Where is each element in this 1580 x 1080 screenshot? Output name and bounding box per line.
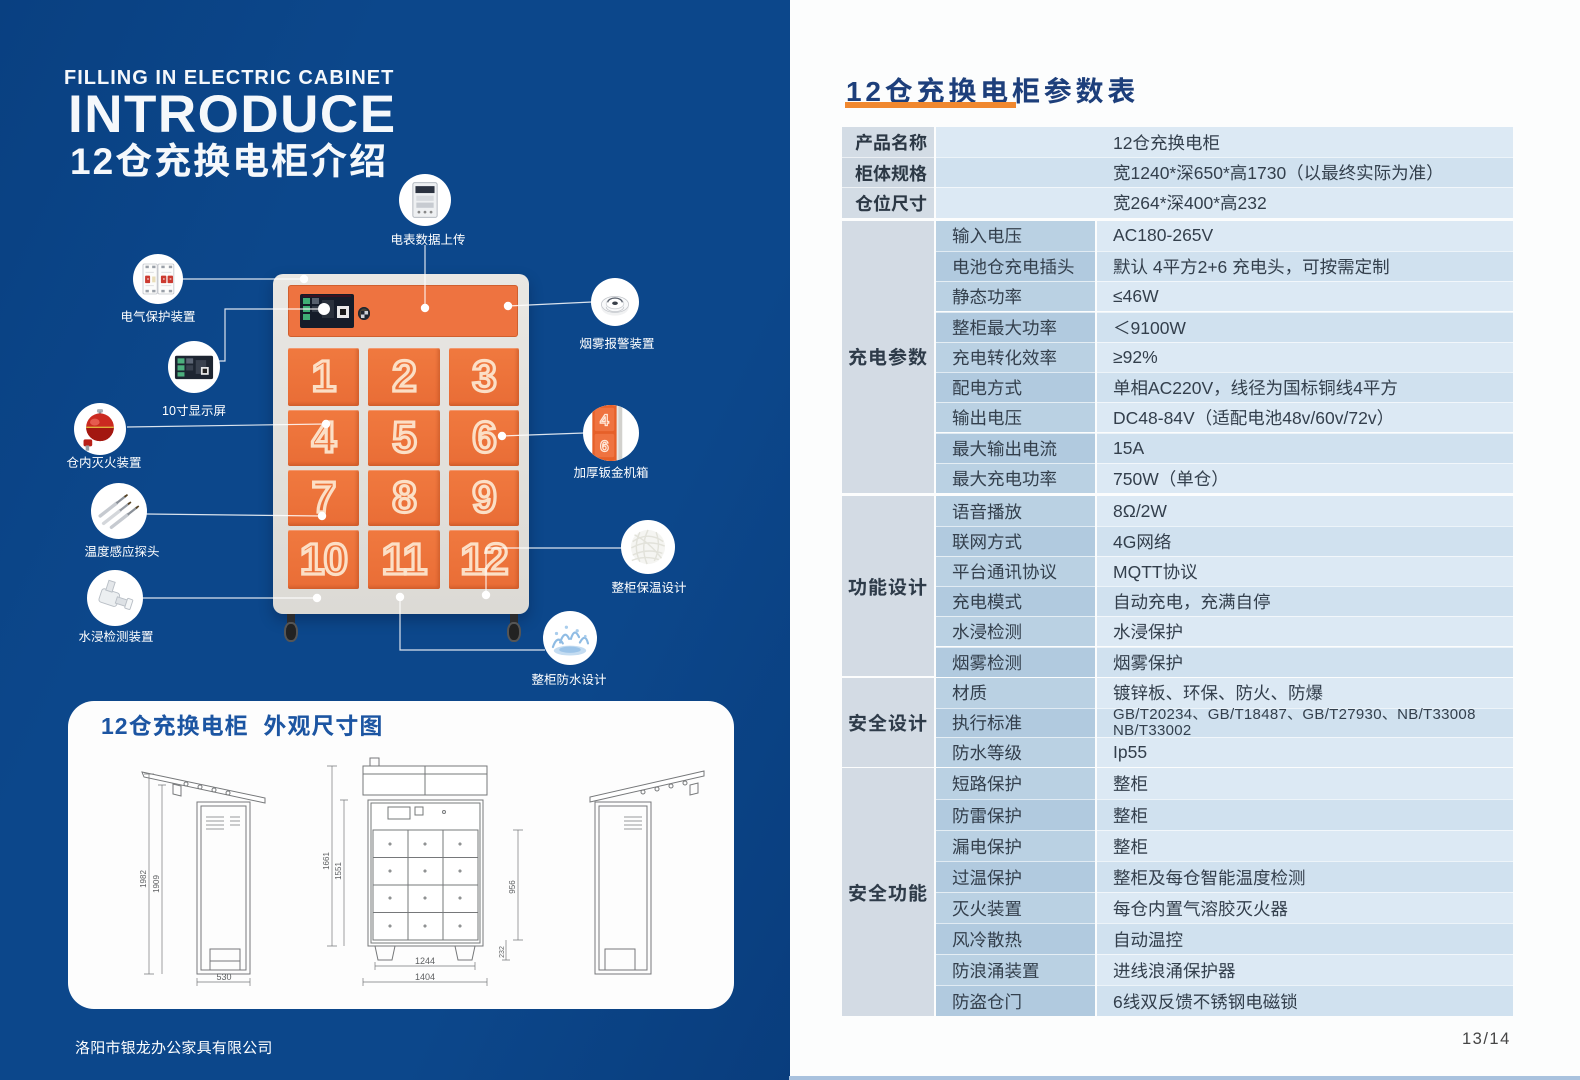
svg-text:1244: 1244 — [415, 956, 435, 966]
svg-text:1404: 1404 — [415, 972, 435, 982]
svg-text:1982: 1982 — [139, 870, 148, 888]
svg-text:1909: 1909 — [152, 875, 161, 893]
svg-text:4: 4 — [600, 413, 609, 430]
svg-text:232: 232 — [499, 946, 506, 958]
svg-text:956: 956 — [508, 880, 517, 894]
svg-text:1661: 1661 — [322, 852, 331, 870]
svg-text:6: 6 — [600, 439, 609, 456]
svg-text:1551: 1551 — [334, 862, 343, 880]
svg-text:530: 530 — [216, 972, 231, 982]
